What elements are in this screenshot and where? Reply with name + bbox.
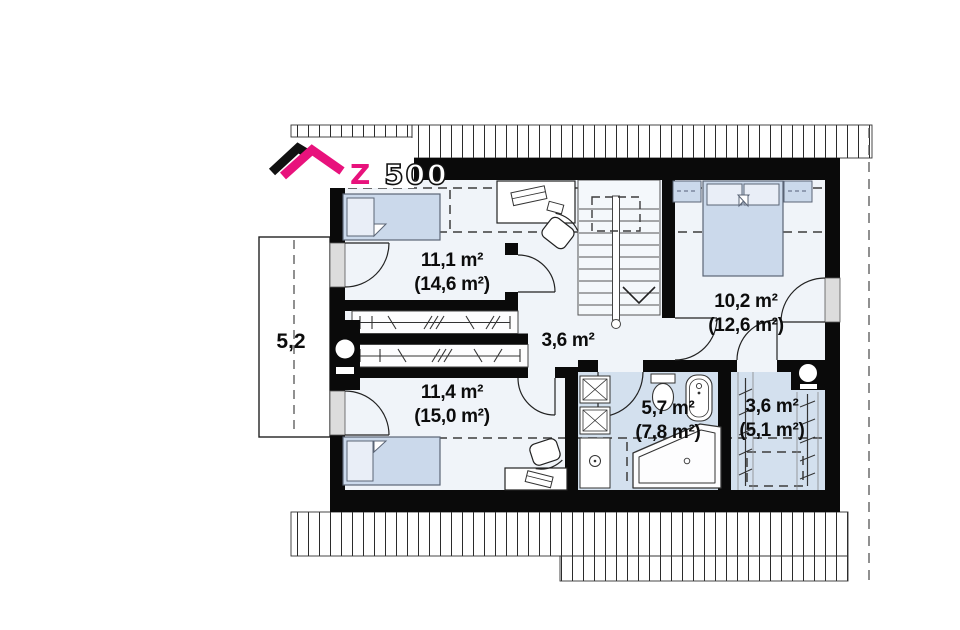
- room-area-label-wardrobe-room: 3,6 m²(5,1 m²): [739, 395, 804, 443]
- floor-plan-drawing: Z 500: [0, 0, 960, 630]
- bed-single-top: [343, 194, 440, 240]
- logo-text-500: 500: [384, 158, 448, 191]
- balcony-width-label: 5,2: [276, 330, 305, 354]
- bed-single-bottom: [343, 437, 440, 485]
- washing-machine-icon: [580, 438, 610, 488]
- logo-text-z: Z: [350, 158, 372, 191]
- staircase: [578, 180, 660, 329]
- roof-hatch-bottom: [291, 512, 848, 581]
- room-area-label-bedroom-right: 10,2 m²(12,6 m²): [708, 290, 783, 338]
- stair-railing: [613, 196, 620, 320]
- floor-plan-canvas: Z 500 11,1 m²(14,6 m²) 3,6 m² 10,2 m²(12…: [0, 0, 960, 630]
- skylight-icon: [580, 407, 610, 434]
- washbasin-icon: [791, 360, 825, 390]
- room-area-label-hallway: 3,6 m²: [541, 329, 594, 353]
- svg-text:Z 500: Z 500: [350, 158, 449, 191]
- room-area-label-bedroom-bottom-left: 11,4 m²(15,0 m²): [414, 381, 489, 429]
- room-area-label-bathroom: 5,7 m²(7,8 m²): [635, 397, 700, 445]
- room-area-label-bedroom-top-left: 11,1 m²(14,6 m²): [414, 249, 489, 297]
- washbasin-icon: [330, 320, 360, 390]
- skylight-icon: [580, 376, 610, 403]
